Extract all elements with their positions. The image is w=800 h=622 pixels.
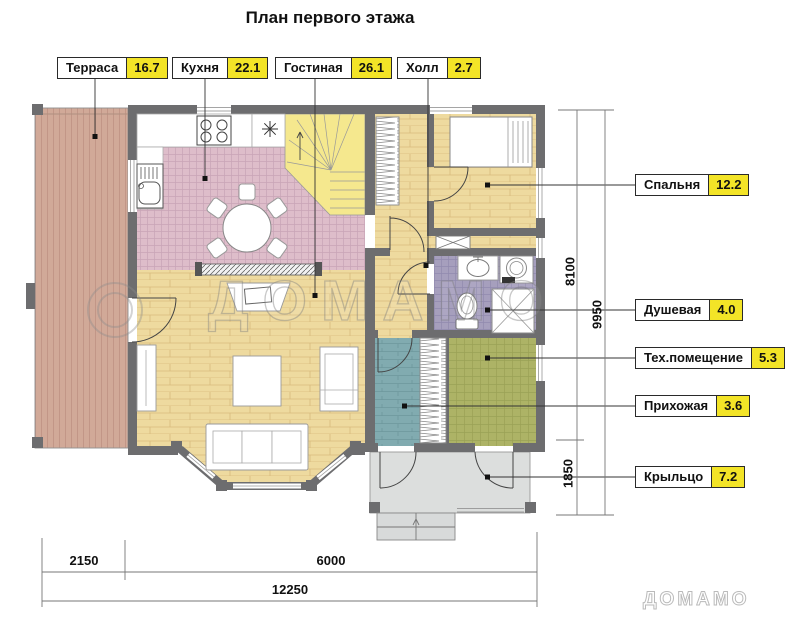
- dimension-6000: 6000: [301, 553, 361, 568]
- watermark-center: ДОМАМО: [208, 268, 557, 334]
- ceiling-light-icon: [262, 121, 278, 137]
- wardrobe-entry: [420, 338, 446, 443]
- room-name: Кухня: [172, 57, 228, 79]
- tech-room-floor: [449, 338, 536, 446]
- room-label-entry-hall: Прихожая 3.6: [635, 395, 750, 417]
- dimension-12250: 12250: [260, 582, 320, 597]
- stove-icon: [197, 116, 231, 145]
- room-label-kitchen: Кухня 22.1: [172, 57, 268, 79]
- bed: [450, 117, 532, 167]
- room-label-bedroom: Спальня 12.2: [635, 174, 749, 196]
- armchair: [320, 347, 358, 411]
- room-area-badge: 5.3: [752, 347, 785, 369]
- room-area-badge: 26.1: [352, 57, 392, 79]
- dimension-2150: 2150: [54, 553, 114, 568]
- terrace-floor: [26, 104, 128, 448]
- room-name: Прихожая: [635, 395, 717, 417]
- room-label-porch: Крыльцо 7.2: [635, 466, 745, 488]
- watermark-corner: ДОМАМО: [643, 589, 749, 611]
- room-name: Спальня: [635, 174, 709, 196]
- room-name: Холл: [397, 57, 448, 79]
- entry-hall-floor: [375, 338, 420, 446]
- porch-steps: [377, 513, 455, 540]
- room-name: Душевая: [635, 299, 710, 321]
- room-area-badge: 12.2: [709, 174, 749, 196]
- sofa: [206, 424, 308, 470]
- room-label-living-room: Гостиная 26.1: [275, 57, 392, 79]
- room-label-shower: Душевая 4.0: [635, 299, 743, 321]
- porch-floor: [369, 452, 536, 513]
- room-area-badge: 2.7: [448, 57, 481, 79]
- room-area-badge: 22.1: [228, 57, 268, 79]
- wardrobe-hall: [376, 117, 399, 205]
- floor-plan-page: План первого этажа ДОМАМО ДОМАМО Терраса…: [0, 0, 800, 622]
- room-name: Крыльцо: [635, 466, 712, 488]
- kitchen-sink-icon: [137, 164, 163, 208]
- side-cabinet: [137, 345, 156, 411]
- room-area-badge: 7.2: [712, 466, 745, 488]
- page-title: План первого этажа: [130, 8, 530, 28]
- dimension-8100: 8100: [563, 242, 578, 302]
- room-label-terrace: Терраса 16.7: [57, 57, 168, 79]
- room-name: Терраса: [57, 57, 127, 79]
- dimension-1850: 1850: [561, 444, 576, 504]
- coffee-table: [233, 356, 281, 406]
- room-label-hall: Холл 2.7: [397, 57, 481, 79]
- room-name: Гостиная: [275, 57, 352, 79]
- room-label-tech-room: Тех.помещение 5.3: [635, 347, 785, 369]
- room-area-badge: 16.7: [127, 57, 167, 79]
- room-name: Тех.помещение: [635, 347, 752, 369]
- room-area-badge: 4.0: [710, 299, 743, 321]
- dimension-9950: 9950: [590, 285, 605, 345]
- room-area-badge: 3.6: [717, 395, 750, 417]
- hall-cabinet: [436, 236, 470, 249]
